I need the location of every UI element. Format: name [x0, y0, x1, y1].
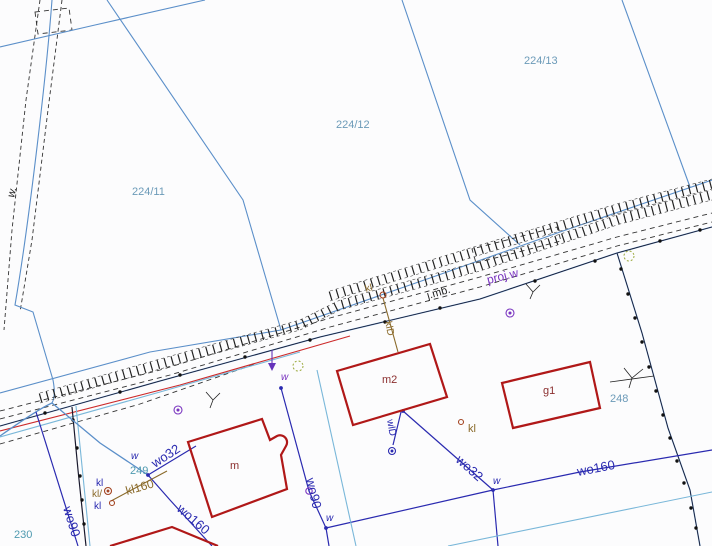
label-klD: klD	[382, 320, 396, 336]
ditch-stream	[4, 0, 72, 403]
parcel-label-248: 248	[610, 393, 628, 405]
building-label-g1: g1	[543, 385, 555, 397]
green-circle-symbol-1	[293, 361, 303, 371]
map-canvas: 224/11 224/12 224/13 248 249 230 m m2 g1…	[0, 0, 712, 546]
labels: 224/11 224/12 224/13 248 249 230 m m2 g1…	[5, 55, 628, 541]
red-utility-line	[0, 336, 350, 431]
label-wo32-west: wo32	[148, 441, 183, 471]
label-w-junction1: w	[131, 451, 139, 462]
label-kl-east: kl	[468, 423, 476, 435]
green-circle-symbol-2	[624, 251, 634, 261]
auxiliary-lines	[317, 370, 712, 546]
label-kl-stack-2: kl	[94, 501, 101, 512]
label-wo90-west: wo90	[60, 504, 84, 539]
label-kl-slash: kl/	[92, 489, 102, 500]
parcel-boundaries	[0, 0, 712, 393]
tree-symbol-1	[610, 368, 654, 388]
boundary-224-12-13	[402, 0, 520, 245]
hydrant-symbol-2	[506, 309, 514, 317]
point-symbols	[174, 251, 654, 494]
parcel-label-224-11: 224/11	[132, 186, 165, 198]
label-wo160-east: wo160	[575, 457, 616, 479]
cadastral-map: 224/11 224/12 224/13 248 249 230 m m2 g1…	[0, 0, 712, 546]
label-w-junction3: w	[326, 513, 334, 524]
label-kl160: kl160	[124, 476, 156, 497]
tree-symbol-3	[206, 392, 220, 408]
boundary-224-11-12	[107, 0, 281, 330]
boundary-224-13-east	[622, 0, 690, 187]
label-w-connection: w	[281, 372, 289, 383]
label-wlD: wlD	[384, 418, 398, 437]
kl-manhole-symbol	[105, 488, 112, 495]
label-wo160-west: wo160	[173, 500, 213, 537]
label-wo90-center: wo90	[303, 475, 325, 510]
parcel-label-249: 249	[130, 465, 148, 477]
tree-symbol-2	[526, 284, 540, 299]
label-proj-w: proj.w	[485, 266, 520, 287]
fence-east	[617, 253, 700, 546]
fence-post-dots	[43, 228, 701, 414]
wlD-valve-symbol	[389, 448, 396, 455]
label-w-junction2: w	[493, 476, 501, 487]
water-main-west	[0, 403, 148, 475]
hydrant-symbol-1	[174, 406, 182, 414]
label-stream-w: w.	[5, 186, 19, 199]
road-strip-north-edge	[0, 180, 712, 393]
boundary-topleft	[0, 0, 205, 47]
culvert-symbol	[35, 8, 72, 34]
label-kl-stack-1: kl	[96, 478, 103, 489]
road-strip	[0, 179, 712, 444]
building-label-m2: m2	[382, 374, 397, 386]
parcel-label-230: 230	[14, 529, 32, 541]
label-j-mb: j.mb.	[425, 284, 452, 302]
parcel-label-224-13: 224/13	[524, 55, 558, 67]
parcel-label-224-12: 224/12	[336, 119, 370, 131]
building-label-m: m	[230, 460, 239, 472]
